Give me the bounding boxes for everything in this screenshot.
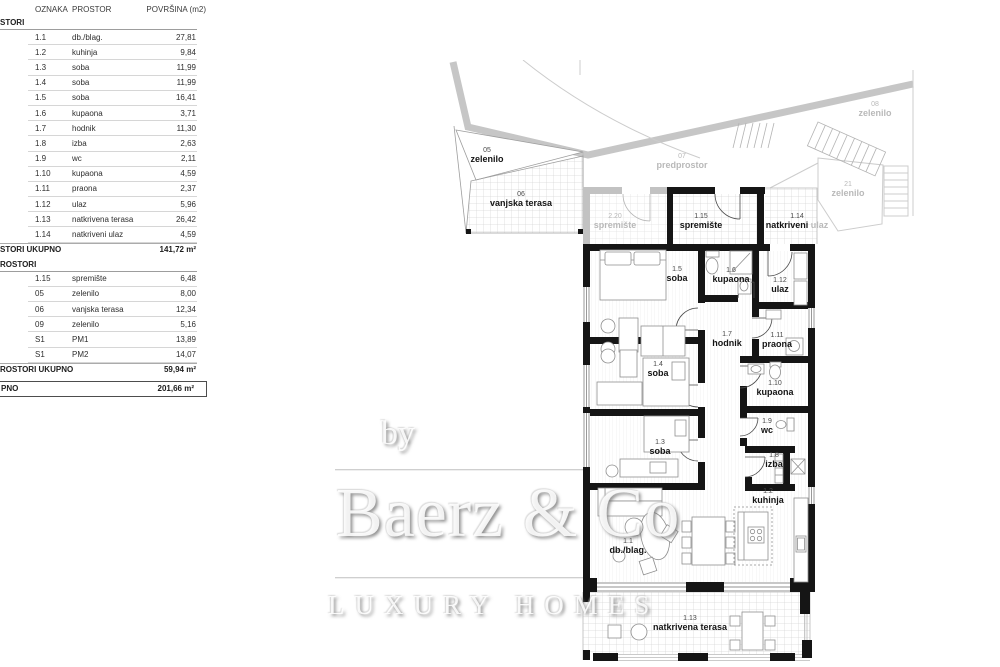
row-area: 5,96 xyxy=(144,201,196,209)
table-row: 1.4soba11,99 xyxy=(0,76,210,91)
row-name: natkrivena terasa xyxy=(72,216,144,224)
section-a-total: STORI UKUPNO 141,72 m² xyxy=(0,243,210,258)
row-area: 3,71 xyxy=(144,110,196,118)
row-name: db./blag. xyxy=(72,34,144,42)
row-code: S1 xyxy=(35,351,72,359)
room-label-2-20: 2.20spremište xyxy=(594,212,637,230)
row-code: 06 xyxy=(35,306,72,314)
section-b-total: ROSTORI UKUPNO 59,94 m² xyxy=(0,363,210,378)
row-name: vanjska terasa xyxy=(72,306,144,314)
row-name: soba xyxy=(72,94,144,102)
table-row: 1.5soba16,41 xyxy=(0,91,210,106)
row-code: S1 xyxy=(35,336,72,344)
room-label-1-7: 1.7hodnik xyxy=(712,330,742,348)
row-name: natkriveni ulaz xyxy=(72,231,144,239)
section-b-title-text: ROSTORI xyxy=(0,261,36,269)
grand-total-box: PNO 201,66 m² xyxy=(0,381,207,397)
row-code: 1.2 xyxy=(35,49,72,57)
room-label-1-5: 1.5soba xyxy=(666,265,687,283)
row-area: 4,59 xyxy=(144,170,196,178)
row-code: 1.11 xyxy=(35,185,72,193)
row-area: 9,84 xyxy=(144,49,196,57)
room-label-1-8: 1.8izba xyxy=(765,451,783,469)
zone-label-21: 21zelenilo xyxy=(831,180,864,198)
watermark-by: by xyxy=(381,415,415,453)
table-row: S1PM113,89 xyxy=(0,332,210,347)
zone-label-05: 05zelenilo xyxy=(470,146,503,164)
row-name: wc xyxy=(72,155,144,163)
table-row: 06vanjska terasa12,34 xyxy=(0,302,210,317)
row-area: 11,99 xyxy=(144,79,196,87)
table-row: 1.11praona2,37 xyxy=(0,182,210,197)
row-code: 1.13 xyxy=(35,216,72,224)
row-name: praona xyxy=(72,185,144,193)
row-name: zelenilo xyxy=(72,321,144,329)
table-row: 09zelenilo5,16 xyxy=(0,317,210,332)
area-table-header: OZNAKA PROSTOR POVRŠINA (m2) xyxy=(0,3,210,16)
section-b-title: ROSTORI xyxy=(0,258,210,272)
total-label: STORI UKUPNO xyxy=(0,246,61,254)
section-a-title: STORI xyxy=(0,16,210,30)
table-row: 05zelenilo8,00 xyxy=(0,287,210,302)
row-code: 1.4 xyxy=(35,79,72,87)
room-label-1-14: 1.14natkriveni ulaz xyxy=(766,212,829,230)
room-label-1-13: 1.13natkrivena terasa xyxy=(653,614,727,632)
row-area: 27,81 xyxy=(144,34,196,42)
row-code: 1.15 xyxy=(35,275,72,283)
row-area: 4,59 xyxy=(144,231,196,239)
area-table: OZNAKA PROSTOR POVRŠINA (m2) STORI 1.1db… xyxy=(0,3,210,397)
room-label-1-15: 1.15spremište xyxy=(680,212,723,230)
row-name: zelenilo xyxy=(72,290,144,298)
floor-plan: 05zelenilo 06vanjska terasa 07predprosto… xyxy=(420,60,1000,667)
header-prostor: PROSTOR xyxy=(72,6,140,14)
row-code: 09 xyxy=(35,321,72,329)
row-code: 1.10 xyxy=(35,170,72,178)
row-name: izba xyxy=(72,140,144,148)
grand-total-label: PNO xyxy=(1,385,18,393)
row-name: hodnik xyxy=(72,125,144,133)
total-value: 59,94 m² xyxy=(164,366,196,374)
row-area: 2,37 xyxy=(144,185,196,193)
table-row: 1.2kuhinja9,84 xyxy=(0,45,210,60)
row-code: 1.5 xyxy=(35,94,72,102)
row-area: 11,30 xyxy=(144,125,196,133)
row-name: PM1 xyxy=(72,336,144,344)
row-area: 6,48 xyxy=(144,275,196,283)
row-code: 1.3 xyxy=(35,64,72,72)
section-a-title-text: STORI xyxy=(0,19,24,27)
room-label-1-12: 1.12ulaz xyxy=(771,276,789,294)
room-label-1-1: 1.1db./blag. xyxy=(610,537,647,555)
room-label-1-4: 1.4soba xyxy=(647,360,668,378)
row-name: kupaona xyxy=(72,110,144,118)
table-row: 1.10kupaona4,59 xyxy=(0,167,210,182)
floorplan-page: { "table": { "columns": { "oznaka": "OZN… xyxy=(0,0,1000,667)
row-name: PM2 xyxy=(72,351,144,359)
header-povrsina: POVRŠINA (m2) xyxy=(140,6,210,14)
row-code: 05 xyxy=(35,290,72,298)
row-area: 5,16 xyxy=(144,321,196,329)
row-code: 1.14 xyxy=(35,231,72,239)
row-name: soba xyxy=(72,64,144,72)
row-area: 8,00 xyxy=(144,290,196,298)
table-row: 1.3soba11,99 xyxy=(0,60,210,75)
row-area: 16,41 xyxy=(144,94,196,102)
row-code: 1.8 xyxy=(35,140,72,148)
row-name: kupaona xyxy=(72,170,144,178)
table-row: 1.6kupaona3,71 xyxy=(0,106,210,121)
table-row: 1.9wc2,11 xyxy=(0,152,210,167)
row-area: 13,89 xyxy=(144,336,196,344)
total-value: 141,72 m² xyxy=(160,246,196,254)
header-oznaka: OZNAKA xyxy=(35,6,72,14)
table-row: 1.1db./blag.27,81 xyxy=(0,30,210,45)
row-name: spremište xyxy=(72,275,144,283)
row-code: 1.12 xyxy=(35,201,72,209)
zone-label-06: 06vanjska terasa xyxy=(490,190,552,208)
table-row: 1.12ulaz5,96 xyxy=(0,197,210,212)
row-name: kuhinja xyxy=(72,49,144,57)
row-area: 11,99 xyxy=(144,64,196,72)
row-area: 2,63 xyxy=(144,140,196,148)
zone-label-07: 07predprostor xyxy=(656,152,707,170)
total-label: ROSTORI UKUPNO xyxy=(0,366,73,374)
table-row: 1.14natkriveni ulaz4,59 xyxy=(0,227,210,242)
row-code: 1.6 xyxy=(35,110,72,118)
table-row: 1.8izba2,63 xyxy=(0,136,210,151)
floor-plan-drawing xyxy=(420,60,1000,667)
table-row: 1.7hodnik11,30 xyxy=(0,121,210,136)
row-area: 2,11 xyxy=(144,155,196,163)
row-area: 12,34 xyxy=(144,306,196,314)
table-row: 1.13natkrivena terasa26,42 xyxy=(0,212,210,227)
room-label-1-6: 1.6kupaona xyxy=(712,266,749,284)
row-name: ulaz xyxy=(72,201,144,209)
room-label-1-2: 1.2kuhinja xyxy=(752,487,784,505)
table-row: 1.15spremište6,48 xyxy=(0,272,210,287)
room-label-1-11: 1.11praona xyxy=(762,331,792,349)
room-label-1-3: 1.3soba xyxy=(649,438,670,456)
row-code: 1.1 xyxy=(35,34,72,42)
row-code: 1.9 xyxy=(35,155,72,163)
row-area: 14,07 xyxy=(144,351,196,359)
zone-label-08: 08zelenilo xyxy=(858,100,891,118)
row-area: 26,42 xyxy=(144,216,196,224)
room-label-1-9: 1.9wc xyxy=(761,417,773,435)
row-code: 1.7 xyxy=(35,125,72,133)
grand-total-value: 201,66 m² xyxy=(158,385,194,393)
room-label-1-10: 1.10kupaona xyxy=(756,379,793,397)
table-row: S1PM214,07 xyxy=(0,348,210,363)
row-name: soba xyxy=(72,79,144,87)
